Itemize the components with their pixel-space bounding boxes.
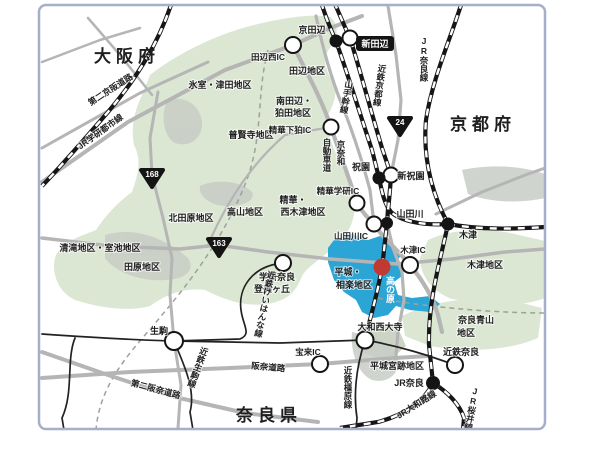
map-canvas: 168 163 24 大阪府 京都府 奈良県 氷室・津田地区 田辺地区 南田辺・… bbox=[0, 0, 600, 450]
district-label-minami-tanabe: 南田辺・ bbox=[276, 95, 312, 106]
district-label-heijo-sagara: 相楽地区 bbox=[336, 279, 372, 290]
ic-label-kizu: 木津IC bbox=[399, 245, 426, 255]
station-label-shintanabe: 新田辺 bbox=[361, 38, 388, 49]
district-label-seika-nishikizu: 精華・ bbox=[279, 194, 306, 205]
route-badge-number: 24 bbox=[396, 118, 405, 127]
station-label-ikoma: 生駒 bbox=[150, 325, 168, 336]
ic-marker-seika-gakken bbox=[350, 196, 365, 211]
station-marker-kizu bbox=[442, 218, 455, 231]
district-label-heijo-sagara: 平城・ bbox=[334, 266, 361, 277]
station-label-hosono: 祝園 bbox=[352, 161, 370, 172]
route-badge-number: 168 bbox=[145, 170, 159, 179]
ic-label-seika-gakken: 精華学研IC bbox=[317, 186, 360, 196]
ic-marker-tanabe-nishi bbox=[285, 37, 301, 53]
district-label-himuro-tsuda: 氷室・津田地区 bbox=[187, 79, 251, 90]
ic-label-yamadagawa: 山田川IC bbox=[334, 231, 368, 241]
prefecture-label-osaka: 大阪府 bbox=[94, 46, 160, 66]
station-marker-yamadagawa bbox=[381, 217, 393, 229]
station-marker-shin-hosono bbox=[384, 168, 399, 183]
district-label-tawara: 田原地区 bbox=[124, 261, 160, 272]
ic-label-tanabe-nishi: 田辺西IC bbox=[251, 52, 285, 62]
district-label-kita-tawara: 北田原地区 bbox=[168, 212, 213, 223]
station-marker-kintetsu-nara bbox=[447, 357, 463, 373]
station-label-shin-hosono: 新祝園 bbox=[397, 170, 424, 181]
road-label-keinawa: 京奈和 bbox=[336, 139, 346, 166]
station-label-kintetsu-nara: 近鉄奈良 bbox=[443, 346, 479, 357]
district-label-nara-aoyama: 地区 bbox=[457, 327, 475, 338]
ic-marker-horai bbox=[312, 356, 328, 372]
station-marker-kyotanabe bbox=[330, 35, 343, 48]
district-label-kiyotaki-muroike: 清滝地区・室池地区 bbox=[59, 242, 140, 253]
district-label-nara-aoyama: 奈良青山 bbox=[457, 314, 494, 325]
station-marker-hosono bbox=[373, 172, 386, 185]
station-label-yamadagawa: 山田川 bbox=[396, 208, 423, 219]
station-label-yamato-saidaiji: 大和西大寺 bbox=[357, 321, 402, 332]
station-badge-shintanabe: 新田辺 bbox=[356, 36, 394, 51]
route-badge-number: 163 bbox=[212, 239, 226, 248]
station-marker-jr-nara bbox=[426, 376, 440, 390]
district-label-heijokyuseki: 平城宮跡地区 bbox=[370, 360, 424, 371]
district-label-takayama: 高山地区 bbox=[227, 206, 263, 217]
rail-label-kintetsu-kashihara: 近鉄橿原線 bbox=[343, 365, 353, 409]
station-label-takanohara: 高の原 bbox=[385, 275, 395, 304]
district-label-seika-nishikizu: 西木津地区 bbox=[280, 206, 325, 217]
ic-label-horai: 宝来IC bbox=[295, 347, 321, 357]
district-label-tanabe: 田辺地区 bbox=[289, 65, 325, 76]
ic-label-seika-shimokoma: 精華下狛IC bbox=[269, 125, 312, 135]
station-marker-takanohara-highlight bbox=[374, 259, 391, 276]
station-label-jr-nara: JR奈良 bbox=[394, 377, 424, 388]
prefecture-label-kyoto: 京都府 bbox=[450, 114, 516, 134]
station-marker-tomigaoka bbox=[275, 255, 291, 271]
station-label-kyotanabe: 京田辺 bbox=[298, 24, 325, 35]
prefecture-label-nara: 奈良県 bbox=[235, 405, 302, 425]
station-marker-yamato-saidaiji bbox=[357, 332, 374, 349]
road-label-keinawa: 自動車道 bbox=[322, 137, 332, 173]
station-label-kizu: 木津 bbox=[458, 229, 477, 240]
district-label-kizu: 木津地区 bbox=[466, 259, 503, 270]
district-label-fugenji: 普賢寺地区 bbox=[228, 129, 273, 140]
rail-label-jr-nara-line: JR奈良線 bbox=[419, 36, 429, 82]
ic-marker-kizu bbox=[402, 257, 418, 273]
station-marker-shintanabe bbox=[343, 31, 358, 46]
ic-marker-seika-shimokoma bbox=[324, 120, 339, 135]
district-label-minami-tanabe: 狛田地区 bbox=[274, 107, 311, 118]
ic-marker-yamadagawa bbox=[367, 217, 382, 232]
